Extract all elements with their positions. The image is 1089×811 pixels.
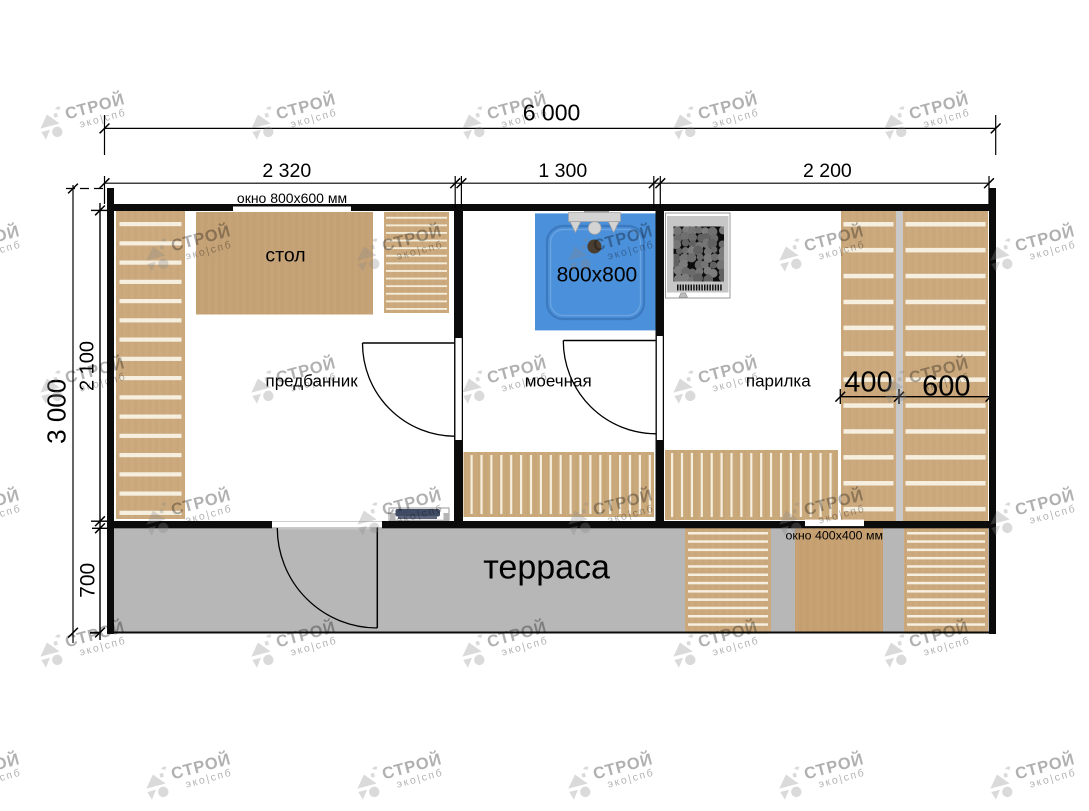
svg-text:1 300: 1 300 <box>538 160 587 182</box>
svg-text:окно 800x600 мм: окно 800x600 мм <box>237 190 347 206</box>
svg-text:терраса: терраса <box>483 549 610 587</box>
svg-text:2 200: 2 200 <box>803 160 852 182</box>
svg-text:700: 700 <box>77 563 100 598</box>
svg-text:400: 400 <box>844 367 892 399</box>
svg-text:800x800: 800x800 <box>557 264 638 287</box>
svg-text:2 320: 2 320 <box>262 160 311 182</box>
svg-text:стол: стол <box>265 245 305 267</box>
